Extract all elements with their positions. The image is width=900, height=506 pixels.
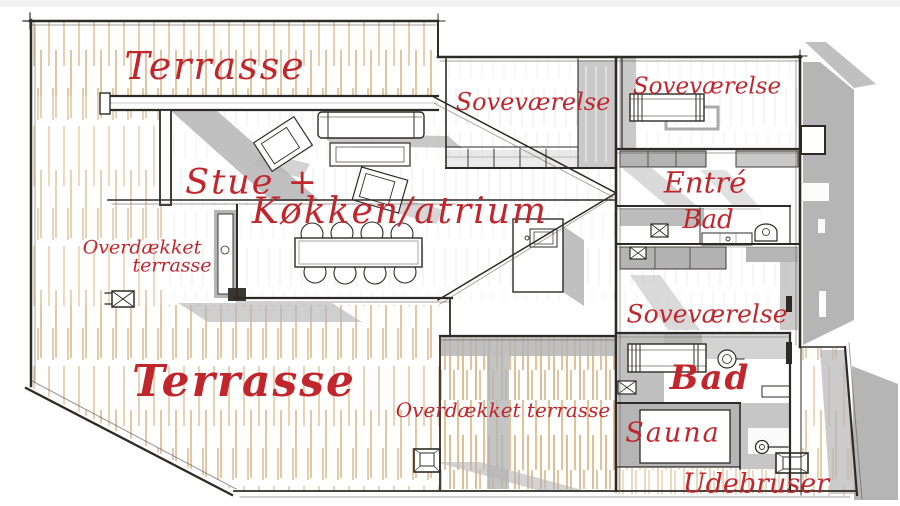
outdoor-shower-box <box>776 453 808 473</box>
wall-shelf <box>762 386 790 397</box>
floor-plan-drawing <box>0 0 900 506</box>
floor-plan: Terrasse Soveværelse Soveværelse Stue + … <box>0 0 900 506</box>
sauna-bench <box>640 410 730 463</box>
terrace-post-bottom <box>414 449 440 472</box>
toilet-icon <box>755 224 777 241</box>
coffee-table <box>330 143 410 166</box>
bed <box>630 94 704 121</box>
sofa <box>318 112 424 138</box>
vanity-counter <box>628 344 706 372</box>
exterior-wall-window <box>801 126 825 154</box>
